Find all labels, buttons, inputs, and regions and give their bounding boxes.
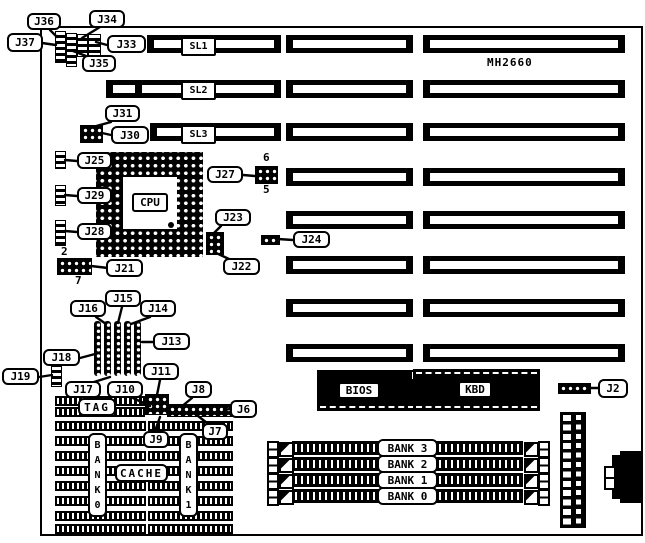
slot-bar xyxy=(286,211,413,229)
simm-endcap xyxy=(267,473,279,490)
pin-strip-j18 xyxy=(104,321,111,376)
jumper-label-j6: J6 xyxy=(230,400,257,418)
simm-latch xyxy=(524,490,539,505)
cpu-label: CPU xyxy=(132,193,168,212)
jumper-pins-j36-j37 xyxy=(55,31,66,63)
jumper-label-j29: J29 xyxy=(77,187,112,204)
simm-latch xyxy=(524,442,539,457)
jumper-pins-j28 xyxy=(55,220,66,246)
slot-bar xyxy=(286,299,413,317)
jumper-label-j21: J21 xyxy=(106,259,143,277)
jumper-label-j10: J10 xyxy=(107,381,143,398)
jumper-label-j17: J17 xyxy=(65,381,101,398)
power-connector xyxy=(560,412,586,528)
jumper-label-j16: J16 xyxy=(70,300,106,317)
kbd-label: KBD xyxy=(458,381,492,398)
simm-endcap xyxy=(538,441,550,458)
slot-label-sl2: SL2 xyxy=(181,81,216,100)
jumper-label-j14: J14 xyxy=(140,300,176,317)
jumper-block-j30-j31 xyxy=(80,125,103,143)
pin-strip-j15 xyxy=(114,321,121,376)
jumper-label-j9: J9 xyxy=(143,431,169,448)
slot-bar xyxy=(286,256,413,274)
jumper-pins-j29 xyxy=(55,185,66,206)
simm-latch xyxy=(279,474,294,489)
simm-latch xyxy=(279,442,294,457)
cache-chip xyxy=(55,524,146,534)
slot-bar xyxy=(423,80,625,98)
jumper-label-j35: J35 xyxy=(82,55,116,72)
jumper-block-j27 xyxy=(255,166,278,184)
jumper-strip-j6-j7-j8-j9-j10 xyxy=(167,404,233,417)
jumper-pins-j33 xyxy=(88,34,101,57)
pin-number-j27-5: 5 xyxy=(263,183,270,196)
slot-bar xyxy=(423,344,625,362)
slot-bar xyxy=(286,80,413,98)
slot-label-sl3: SL3 xyxy=(181,125,216,144)
jumper-label-j22: J22 xyxy=(223,258,260,275)
jumper-label-j25: J25 xyxy=(77,152,112,169)
slot-bar xyxy=(286,344,413,362)
pin-number-j21-2: 2 xyxy=(61,245,68,258)
board-model: MH2660 xyxy=(487,56,533,69)
simm-endcap xyxy=(538,473,550,490)
pin-strip-j16 xyxy=(94,321,101,376)
slot-bar xyxy=(423,299,625,317)
jumper-pins-j2 xyxy=(558,383,591,394)
jumper-label-j30: J30 xyxy=(111,126,149,144)
jumper-label-j11: J11 xyxy=(143,363,179,380)
jumper-label-j31: J31 xyxy=(105,105,140,122)
jumper-label-j2: J2 xyxy=(598,379,628,398)
simm-endcap xyxy=(267,457,279,474)
pin-number-j27-6: 6 xyxy=(263,151,270,164)
cache-chip xyxy=(148,524,233,534)
simm-latch xyxy=(524,458,539,473)
slot-bar xyxy=(423,123,625,141)
jumper-pins-j35 xyxy=(66,33,77,67)
slot-label-sl1: SL1 xyxy=(181,37,216,56)
jumper-label-j33: J33 xyxy=(107,35,146,53)
jumper-pins-j24 xyxy=(261,235,280,245)
jumper-label-j24: J24 xyxy=(293,231,330,248)
jumper-pins-j34 xyxy=(77,34,88,57)
cache-label: CACHE xyxy=(115,464,168,482)
slot-bar xyxy=(286,35,413,53)
slot-bar xyxy=(423,256,625,274)
jumper-label-j18: J18 xyxy=(43,349,80,366)
slot-bar xyxy=(423,211,625,229)
slot-bar xyxy=(286,168,413,186)
simm-latch xyxy=(279,490,294,505)
cache-chip xyxy=(55,421,146,431)
cpu-pin1-dot xyxy=(168,222,174,228)
slot-bar xyxy=(286,123,413,141)
din-mount-tab xyxy=(604,477,616,490)
slot-bar xyxy=(423,35,625,53)
simm-bank0-label: BANK 0 xyxy=(377,487,438,505)
simm-latch xyxy=(279,458,294,473)
tag-label: TAG xyxy=(78,398,116,416)
jumper-pins-j25 xyxy=(55,151,66,169)
simm-endcap xyxy=(267,489,279,506)
jumper-pins-j19 xyxy=(51,366,62,387)
pin-strip-j13 xyxy=(134,321,141,376)
jumper-label-j13: J13 xyxy=(153,333,190,350)
cache-bank1-label: BANK1 xyxy=(179,433,198,517)
pin-number-j21-7: 7 xyxy=(75,274,82,287)
jumper-label-j36: J36 xyxy=(27,13,61,30)
jumper-label-j37: J37 xyxy=(7,33,43,52)
jumper-label-j28: J28 xyxy=(77,223,112,240)
jumper-label-j15: J15 xyxy=(105,290,141,307)
jumper-label-j19: J19 xyxy=(2,368,39,385)
jumper-block-j21 xyxy=(57,258,92,275)
keyboard-din-connector xyxy=(620,451,642,503)
bios-label: BIOS xyxy=(338,382,380,399)
motherboard-diagram: MH2660 SL1 SL2 SL3 CPU xyxy=(0,0,645,543)
simm-endcap xyxy=(267,441,279,458)
jumper-label-j27: J27 xyxy=(207,166,243,183)
pin-strip-j14 xyxy=(124,321,131,376)
jumper-block-j22-j23 xyxy=(206,232,224,255)
jumper-label-j7: J7 xyxy=(202,423,228,440)
slot-bar xyxy=(423,168,625,186)
simm-latch xyxy=(524,474,539,489)
simm-endcap xyxy=(538,457,550,474)
jumper-label-j8: J8 xyxy=(185,381,212,398)
jumper-block-j11 xyxy=(145,394,169,415)
jumper-label-j23: J23 xyxy=(215,209,251,226)
jumper-label-j34: J34 xyxy=(89,10,125,28)
cache-bank0-label: BANK0 xyxy=(88,433,107,517)
simm-endcap xyxy=(538,489,550,506)
